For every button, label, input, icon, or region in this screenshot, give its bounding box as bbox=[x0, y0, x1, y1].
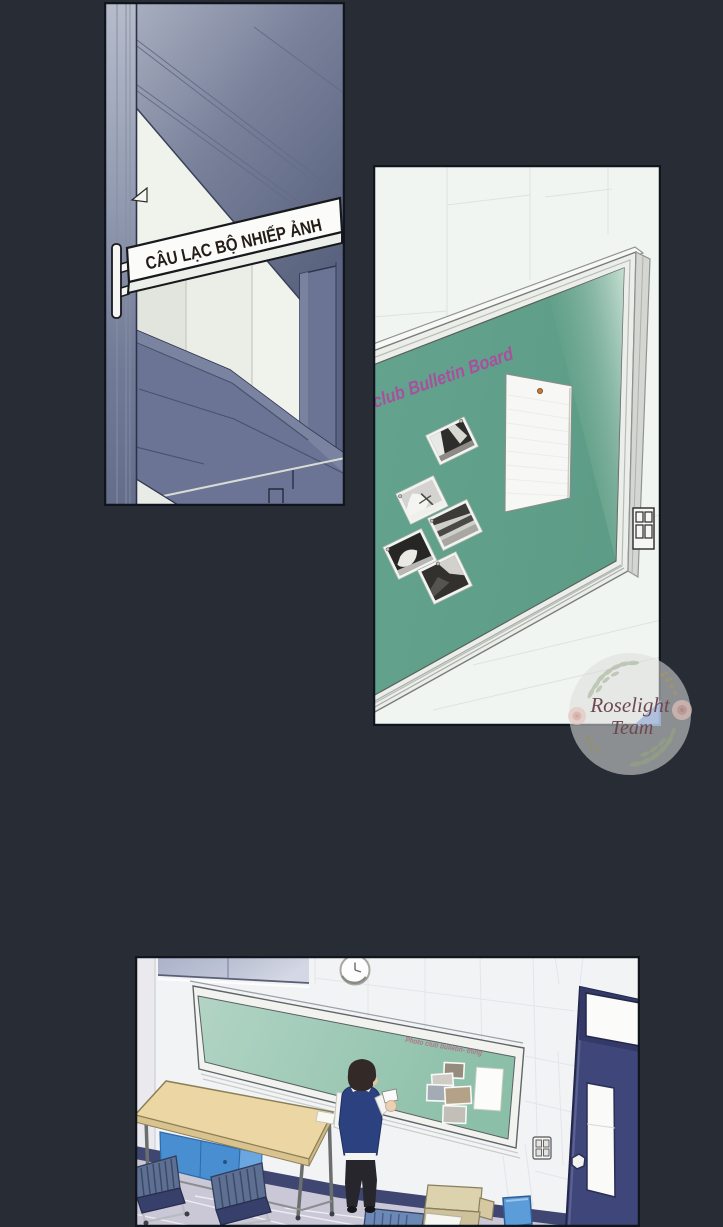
svg-text:Roselight: Roselight bbox=[589, 693, 670, 717]
svg-text:Team: Team bbox=[611, 717, 654, 739]
